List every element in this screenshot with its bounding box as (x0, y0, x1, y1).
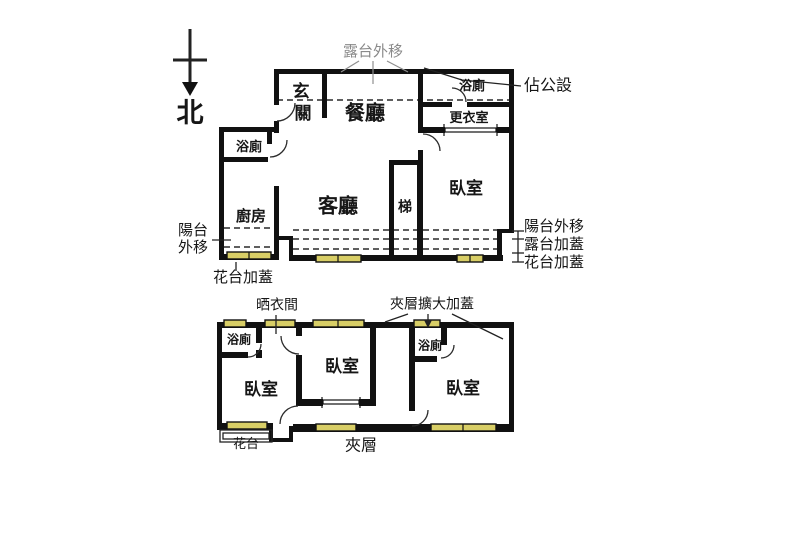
upper-floor-walls (219, 69, 514, 261)
lower-floor-windows (224, 320, 496, 431)
room-label-dining: 餐廳 (345, 104, 385, 125)
room-label-bedroom-upper: 臥室 (449, 180, 483, 198)
annotation-balcony-out-left-line1: 陽台 (178, 224, 208, 240)
annotation-balcony-out-left-line2: 外移 (178, 241, 208, 257)
room-label-stairs: 梯 (398, 202, 412, 217)
room-label-entry-1: 玄 (293, 83, 310, 101)
annotation-occupies-public-area: 佔公設 (524, 79, 572, 96)
north-arrow (173, 29, 207, 96)
annotation-laundry-drying-room: 晒衣間 (256, 300, 298, 315)
room-label-bath-left: 浴廁 (236, 140, 262, 154)
annotation-terrace-moved-out: 露台外移 (343, 45, 403, 61)
room-label-dressing: 更衣室 (449, 111, 488, 125)
room-label-entry-2: 關 (295, 105, 312, 123)
room-label-bath-top-right: 浴廁 (459, 79, 485, 93)
room-label-bath-lower-left: 浴廁 (227, 334, 251, 347)
annotation-mezzanine-expanded-cover: 夾層擴大加蓋 (390, 299, 474, 314)
annotation-mezzanine: 夾層 (345, 439, 377, 456)
annotation-flower-cover-right: 花台加蓋 (524, 256, 584, 272)
annotation-flower-stand: 花台 (233, 437, 259, 451)
room-label-kitchen: 廚房 (236, 210, 266, 226)
floor-plan-drawing (0, 0, 800, 546)
room-label-bedroom-lower-right: 臥室 (446, 380, 480, 398)
floor-plan-canvas: 北 露台外移 玄 關 餐廳 浴廁 佔公設 更衣室 浴廁 廚房 客廳 梯 臥室 陽… (0, 0, 800, 546)
room-label-bath-lower-right: 浴廁 (418, 340, 442, 353)
north-label: 北 (177, 99, 204, 127)
annotation-balcony-out-right: 陽台外移 (524, 220, 584, 236)
room-label-bedroom-lower-middle: 臥室 (325, 358, 359, 376)
annotation-terrace-cover-right: 露台加蓋 (524, 238, 584, 254)
room-label-living: 客廳 (318, 197, 358, 218)
annotation-flower-cover-left: 花台加蓋 (213, 271, 273, 287)
room-label-bedroom-lower-left: 臥室 (244, 381, 278, 399)
